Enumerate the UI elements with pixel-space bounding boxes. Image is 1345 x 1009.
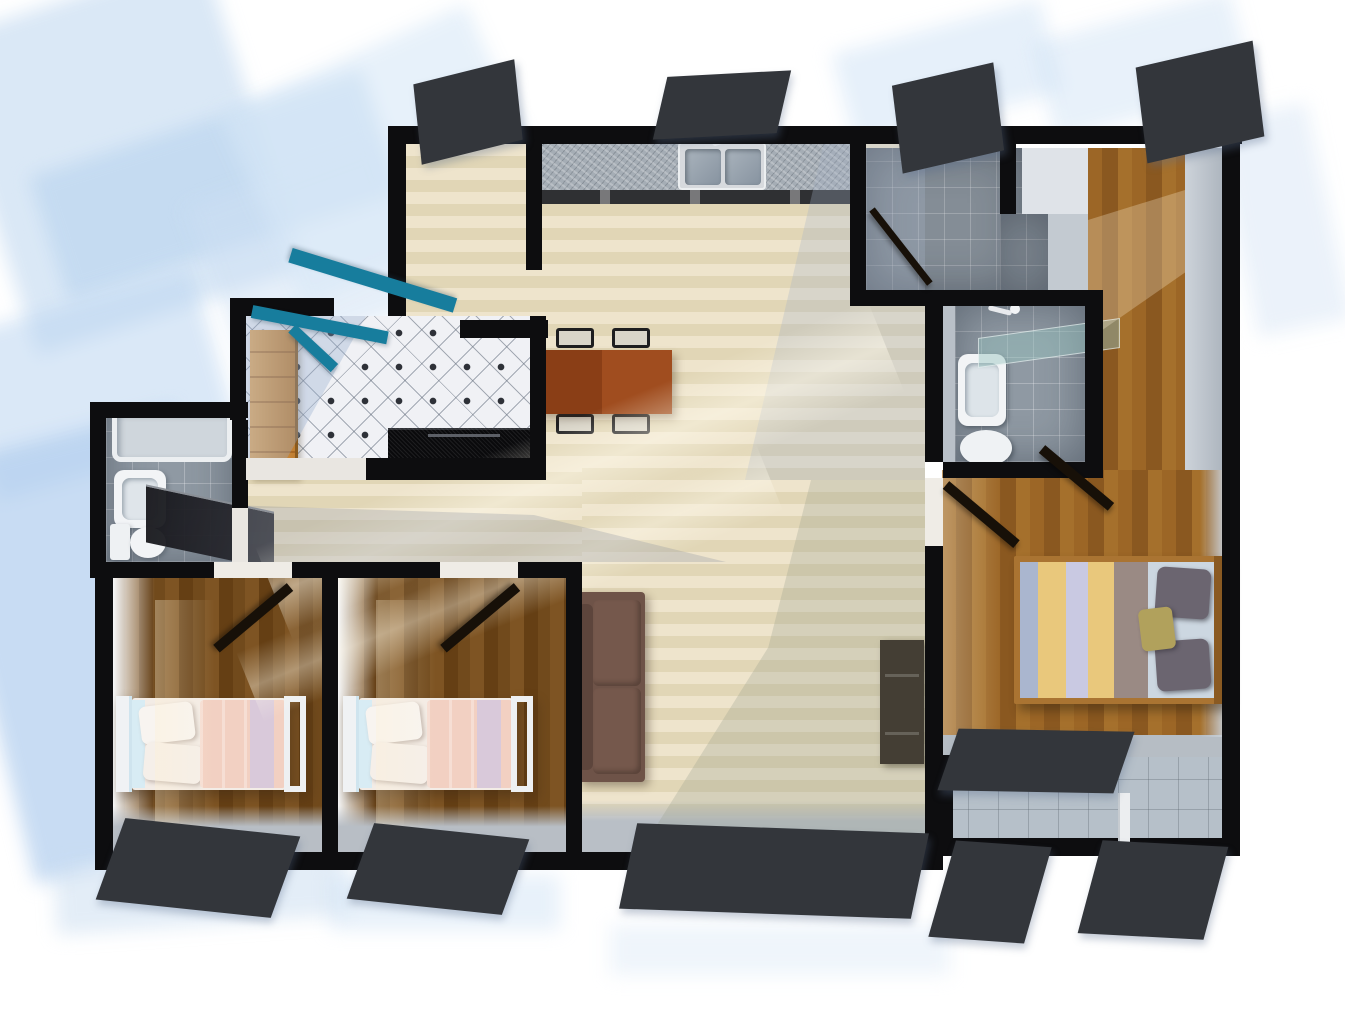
double-bed [1014, 556, 1226, 704]
bed-duvet-stripe [477, 700, 501, 788]
wall-face [1022, 148, 1088, 214]
single-bed [116, 692, 306, 796]
single-bed [343, 692, 533, 796]
doorway-sill [214, 562, 292, 578]
doorway-sill [246, 458, 366, 480]
bed-pillow [369, 742, 430, 785]
bed-pillow [365, 701, 423, 745]
wall [1222, 126, 1240, 856]
sofa [578, 592, 645, 782]
toilet-bowl [960, 430, 1012, 466]
basin-bowl [965, 363, 999, 417]
dining-chair [556, 328, 594, 348]
bed-duvet-striped [1020, 562, 1148, 698]
dining-chair [556, 414, 594, 434]
tv-cabinet [880, 640, 924, 764]
dining-chair [612, 328, 650, 348]
window [347, 823, 530, 915]
doorway-sill [232, 508, 248, 562]
dining-table [537, 350, 672, 414]
sink-basin [725, 149, 761, 185]
window [1078, 840, 1229, 939]
sofa-cushion [593, 688, 641, 774]
doorway-sill [440, 562, 518, 578]
wall [530, 316, 546, 462]
wall [925, 306, 943, 462]
counter-edge-highlight [428, 434, 500, 437]
wall-face [1185, 148, 1222, 470]
wall [90, 402, 248, 418]
drawer-line [885, 674, 919, 677]
wall-face [1048, 214, 1088, 292]
kitchen-cabinet-front [540, 190, 852, 204]
bed-pillow-accent [1138, 606, 1177, 652]
kitchen-sink [678, 142, 766, 190]
bed-headboard [116, 696, 132, 792]
wall [1000, 144, 1016, 214]
bed-pillow [142, 742, 203, 785]
bed-headboard [343, 696, 359, 792]
wall [95, 562, 113, 870]
sink-basin [685, 149, 721, 185]
bathroom-top-floor [866, 148, 1022, 292]
wall [90, 402, 106, 578]
bed-duvet-stripe [250, 700, 274, 788]
sofa-cushion [593, 600, 641, 686]
wall [566, 562, 582, 870]
wall [526, 144, 542, 270]
wall [322, 578, 338, 852]
wall [366, 458, 546, 480]
balcony-sliding-frame [937, 729, 1134, 794]
wall [850, 144, 866, 306]
floor-plan-render [0, 0, 1345, 1009]
drawer-line [885, 732, 919, 735]
toilet [110, 524, 130, 560]
doorway-sill [925, 478, 943, 546]
bed-footboard [511, 696, 533, 792]
wall [850, 290, 1103, 306]
wall [1085, 306, 1103, 462]
wall-face [943, 304, 955, 462]
dining-chair [612, 414, 650, 434]
window [619, 823, 929, 919]
bathroom-top-floor-ext [1000, 214, 1048, 292]
window [653, 70, 791, 139]
bed-pillow [138, 701, 196, 745]
black-counter [388, 428, 532, 460]
oak-cabinet [250, 330, 298, 478]
wall [292, 562, 440, 578]
cast-shadow [610, 925, 950, 975]
bed-footboard [284, 696, 306, 792]
